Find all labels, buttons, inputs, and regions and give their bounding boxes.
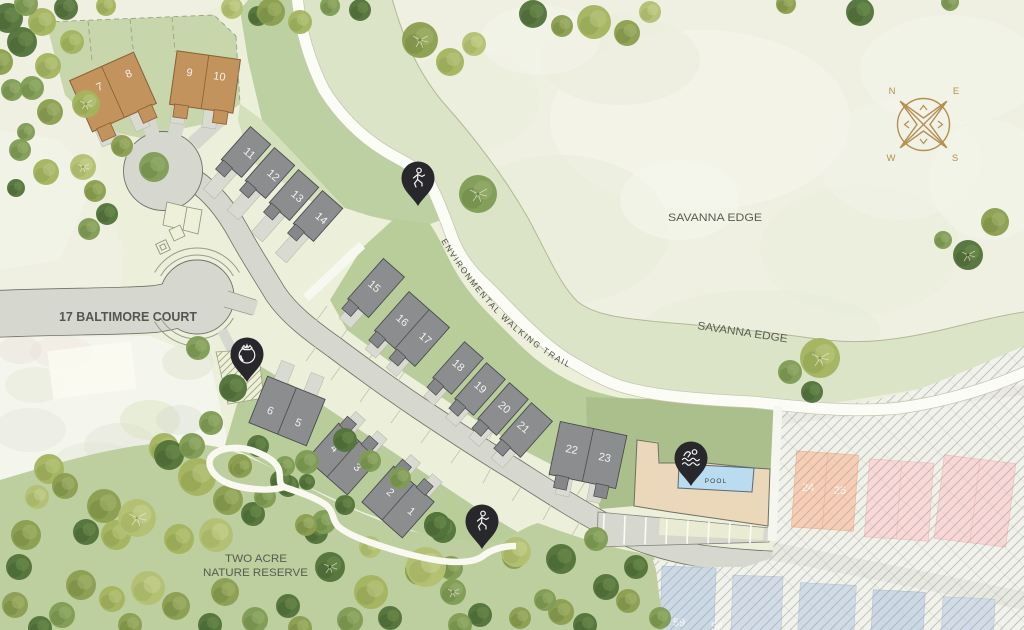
svg-text:S: S <box>952 153 958 164</box>
svg-text:E: E <box>953 86 959 97</box>
svg-text:N: N <box>889 86 896 97</box>
svg-text:W: W <box>887 153 896 164</box>
svg-text:TWO ACRE: TWO ACRE <box>225 553 287 565</box>
svg-text:POOL: POOL <box>705 478 728 485</box>
svg-text:10: 10 <box>213 70 227 84</box>
svg-text:17 BALTIMORE COURT: 17 BALTIMORE COURT <box>59 310 197 324</box>
svg-text:NATURE RESERVE: NATURE RESERVE <box>203 567 308 579</box>
svg-text:22: 22 <box>564 443 578 457</box>
svg-text:23: 23 <box>597 451 611 465</box>
svg-text:SAVANNA EDGE: SAVANNA EDGE <box>668 212 762 224</box>
